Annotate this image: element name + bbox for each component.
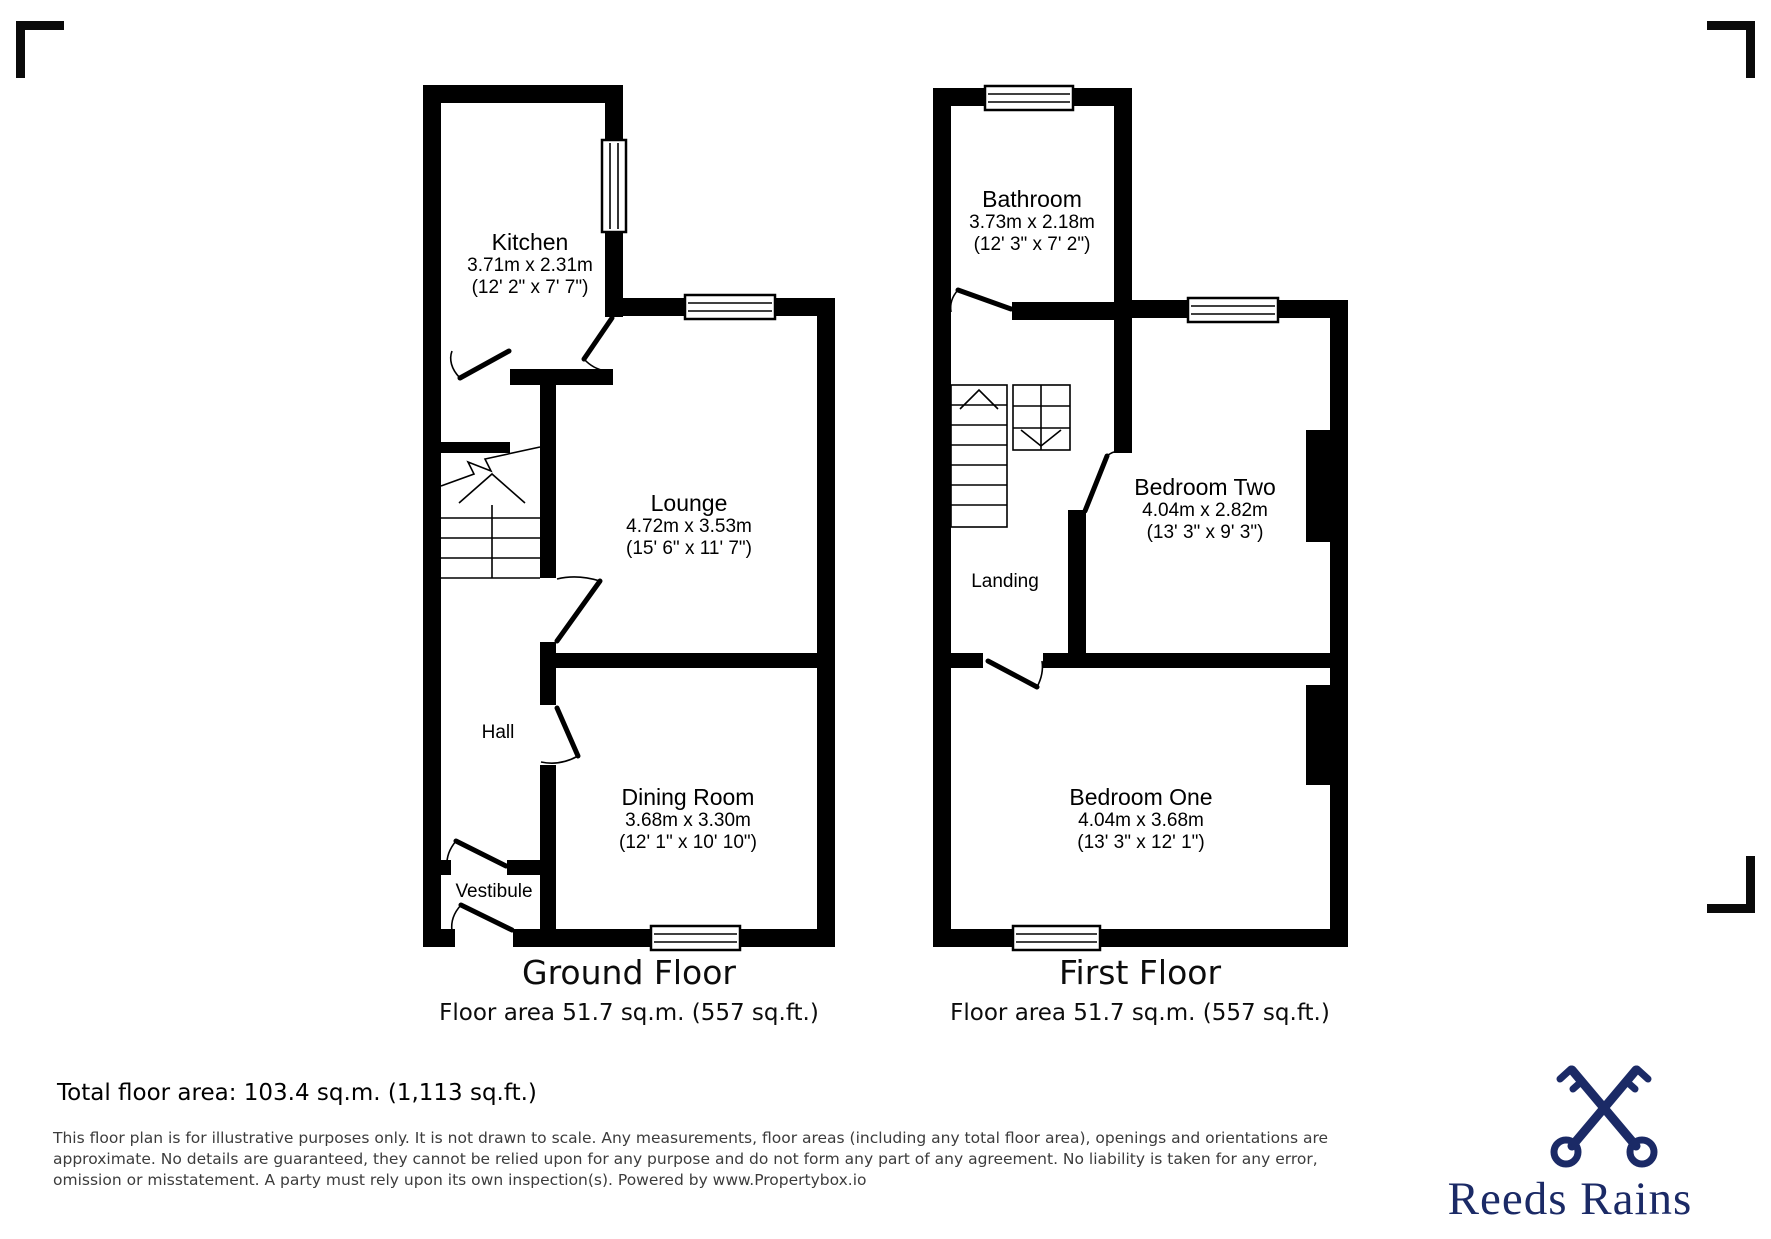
first-floor-doors <box>951 290 1121 687</box>
room-name: Lounge <box>626 490 752 516</box>
floorplan-graphic <box>0 0 1771 1239</box>
room-name: Dining Room <box>619 784 757 810</box>
disclaimer-text: This floor plan is for illustrative purp… <box>53 1128 1373 1191</box>
room-name: Bedroom One <box>1069 784 1212 810</box>
room-dim-imperial: (13' 3" x 12' 1") <box>1069 832 1212 854</box>
room-dim-metric: 4.04m x 2.82m <box>1134 500 1275 522</box>
ground-floor-doors <box>447 318 612 931</box>
room-dim-metric: 3.71m x 2.31m <box>467 255 593 277</box>
room-dim-metric: 4.04m x 3.68m <box>1069 810 1212 832</box>
room-label-bedroom-one: Bedroom One 4.04m x 3.68m (13' 3" x 12' … <box>1069 784 1212 854</box>
room-dim-imperial: (15' 6" x 11' 7") <box>626 538 752 560</box>
room-label-lounge: Lounge 4.72m x 3.53m (15' 6" x 11' 7") <box>626 490 752 560</box>
room-dim-metric: 4.72m x 3.53m <box>626 516 752 538</box>
room-label-landing: Landing <box>971 571 1039 593</box>
crop-mark-top-left <box>16 21 64 78</box>
room-label-kitchen: Kitchen 3.71m x 2.31m (12' 2" x 7' 7") <box>467 229 593 299</box>
room-dim-metric: 3.73m x 2.18m <box>969 212 1095 234</box>
room-dim-metric: 3.68m x 3.30m <box>619 810 757 832</box>
room-dim-imperial: (12' 3" x 7' 2") <box>969 234 1095 256</box>
crop-mark-top-right <box>1707 21 1755 78</box>
ground-floor-title: Ground Floor <box>522 953 736 992</box>
ground-floor-staircase-icon <box>441 447 540 578</box>
brand-wordmark: Reeds Rains <box>1448 1172 1693 1226</box>
ground-floor-area: Floor area 51.7 sq.m. (557 sq.ft.) <box>439 1000 819 1026</box>
room-label-bathroom: Bathroom 3.73m x 2.18m (12' 3" x 7' 2") <box>969 186 1095 256</box>
room-dim-imperial: (13' 3" x 9' 3") <box>1134 522 1275 544</box>
first-floor-title: First Floor <box>1059 953 1221 992</box>
first-floor-area: Floor area 51.7 sq.m. (557 sq.ft.) <box>950 1000 1330 1026</box>
room-name: Kitchen <box>467 229 593 255</box>
first-floor-staircase-icon <box>951 385 1070 527</box>
room-dim-imperial: (12' 2" x 7' 7") <box>467 277 593 299</box>
crossed-keys-icon <box>1554 1069 1654 1164</box>
room-dim-imperial: (12' 1" x 10' 10") <box>619 832 757 854</box>
crop-mark-bottom-right <box>1707 856 1755 913</box>
room-label-vestibule: Vestibule <box>455 881 532 903</box>
room-label-hall: Hall <box>482 722 515 744</box>
room-name: Bathroom <box>969 186 1095 212</box>
room-label-bedroom-two: Bedroom Two 4.04m x 2.82m (13' 3" x 9' 3… <box>1134 474 1275 544</box>
room-name: Bedroom Two <box>1134 474 1275 500</box>
total-floor-area: Total floor area: 103.4 sq.m. (1,113 sq.… <box>57 1080 537 1106</box>
floorplan-page: Kitchen 3.71m x 2.31m (12' 2" x 7' 7") L… <box>0 0 1771 1239</box>
room-label-dining-room: Dining Room 3.68m x 3.30m (12' 1" x 10' … <box>619 784 757 854</box>
